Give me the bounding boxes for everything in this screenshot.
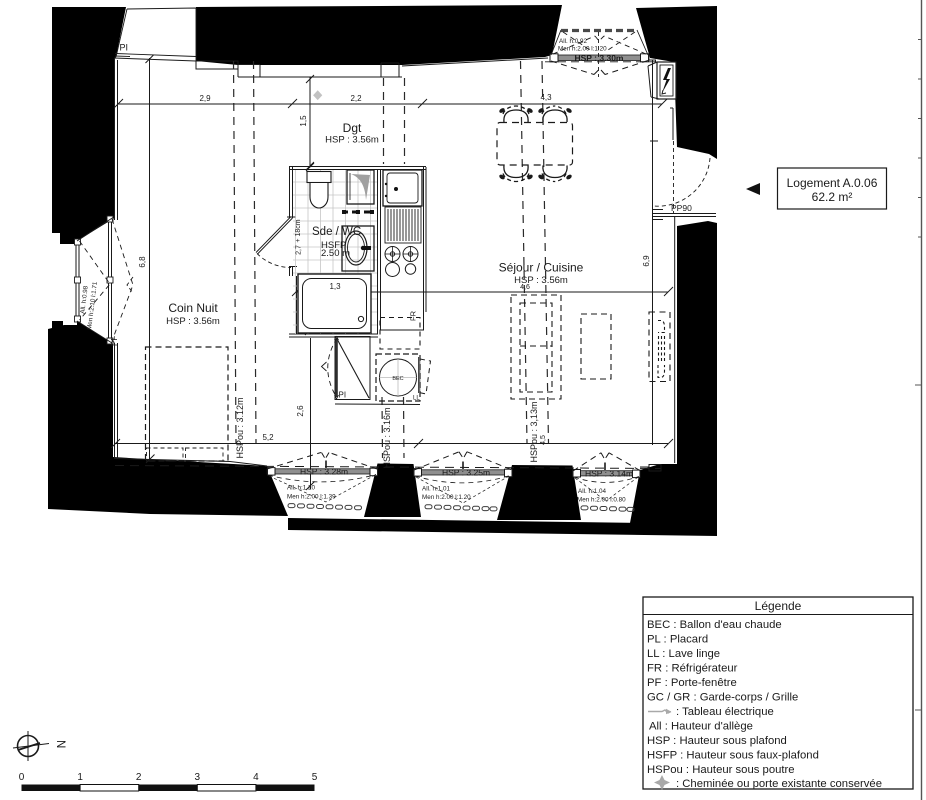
svg-text:Men h:2.00 l:0.80: Men h:2.00 l:0.80 [577, 497, 626, 504]
svg-text:5: 5 [312, 772, 318, 783]
svg-text:6,9: 6,9 [642, 255, 651, 267]
svg-text:HSP : 3.25m: HSP : 3.25m [442, 468, 490, 478]
svg-text:PI: PI [339, 391, 347, 400]
svg-text:Coin Nuit: Coin Nuit [168, 301, 218, 315]
svg-text:4,6: 4,6 [520, 284, 530, 291]
svg-text:3: 3 [195, 772, 201, 783]
svg-text:All. h:1.20: All. h:1.20 [287, 485, 316, 492]
svg-text:LL : Lave linge: LL : Lave linge [647, 648, 720, 660]
svg-text:1: 1 [77, 772, 83, 783]
svg-text:HSP : 3.30m: HSP : 3.30m [575, 53, 624, 63]
svg-text:All. h:1.04: All. h:1.04 [578, 488, 607, 495]
svg-text:Men h:2.00 l:1.20: Men h:2.00 l:1.20 [422, 494, 471, 501]
svg-text:HSP : 3.28m: HSP : 3.28m [300, 467, 348, 477]
svg-text:N: N [54, 740, 66, 748]
svg-text:HSP : 3.56m: HSP : 3.56m [325, 135, 379, 146]
svg-text:2,6: 2,6 [296, 405, 305, 417]
svg-text:4: 4 [253, 772, 259, 783]
svg-text:All : Hauteur d'allège: All : Hauteur d'allège [649, 721, 753, 733]
svg-text:0: 0 [19, 772, 25, 783]
svg-text:5,2: 5,2 [262, 433, 274, 442]
svg-text:Légende: Légende [755, 599, 802, 613]
svg-text:All. h:1.01: All. h:1.01 [422, 486, 451, 493]
svg-text:: Cheminée ou porte existante: : Cheminée ou porte existante conservée [676, 778, 882, 790]
svg-text:HSP : 3.56m: HSP : 3.56m [166, 316, 220, 327]
svg-text:+ 18cm: + 18cm [295, 219, 302, 242]
svg-text:BEC : Ballon d'eau chaude: BEC : Ballon d'eau chaude [647, 619, 782, 631]
svg-text:LL: LL [413, 396, 420, 402]
svg-text:6,8: 6,8 [138, 256, 147, 268]
svg-text:HSPou : Hauteur sous poutre: HSPou : Hauteur sous poutre [647, 764, 795, 776]
svg-text:HSFP : Hauteur sous faux-plafo: HSFP : Hauteur sous faux-plafond [647, 750, 819, 762]
svg-text:1,5: 1,5 [299, 115, 308, 127]
svg-text:Sde / WC: Sde / WC [312, 226, 361, 238]
svg-text:HSPou : 3,13m: HSPou : 3,13m [529, 401, 539, 462]
svg-text:: Tableau électrique: : Tableau électrique [676, 706, 774, 718]
svg-text:2,7: 2,7 [296, 245, 303, 255]
svg-text:PP90: PP90 [671, 203, 692, 213]
svg-text:1,3: 1,3 [329, 282, 341, 291]
svg-text:Men h:2.00 l:1.39: Men h:2.00 l:1.39 [287, 494, 336, 501]
svg-text:HSPou : 3.12m: HSPou : 3.12m [235, 397, 245, 458]
svg-text:2,9: 2,9 [199, 94, 211, 103]
svg-text:All. h:0.92: All. h:0.92 [559, 38, 588, 45]
svg-text:Men h:2.00 l:1.20: Men h:2.00 l:1.20 [558, 46, 607, 53]
svg-text:2,2: 2,2 [350, 94, 362, 103]
svg-text:Logement A.0.06: Logement A.0.06 [787, 176, 878, 190]
svg-text:PF : Porte-fenêtre: PF : Porte-fenêtre [647, 677, 737, 689]
svg-text:BEC: BEC [392, 376, 403, 382]
svg-text:2: 2 [136, 772, 142, 783]
svg-text:HSP : Hauteur sous plafond: HSP : Hauteur sous plafond [647, 735, 787, 747]
svg-text:HSPou : 3.16m: HSPou : 3.16m [382, 407, 392, 468]
svg-text:PF: PF [110, 336, 119, 346]
svg-text:PI: PI [120, 43, 129, 53]
svg-text:FR : Réfrigérateur: FR : Réfrigérateur [647, 663, 738, 675]
svg-text:4,5: 4,5 [540, 435, 547, 445]
svg-text:62.2 m²: 62.2 m² [812, 190, 853, 204]
svg-text:FR: FR [409, 310, 418, 321]
svg-text:4,3: 4,3 [540, 93, 552, 102]
svg-text:Séjour / Cuisine: Séjour / Cuisine [499, 261, 584, 275]
svg-text:Dgt: Dgt [343, 121, 362, 135]
svg-text:GC / GR : Garde-corps / Grille: GC / GR : Garde-corps / Grille [647, 692, 798, 704]
svg-text:HSP : 3.14m: HSP : 3.14m [585, 469, 633, 479]
svg-text:PL : Placard: PL : Placard [647, 634, 708, 646]
